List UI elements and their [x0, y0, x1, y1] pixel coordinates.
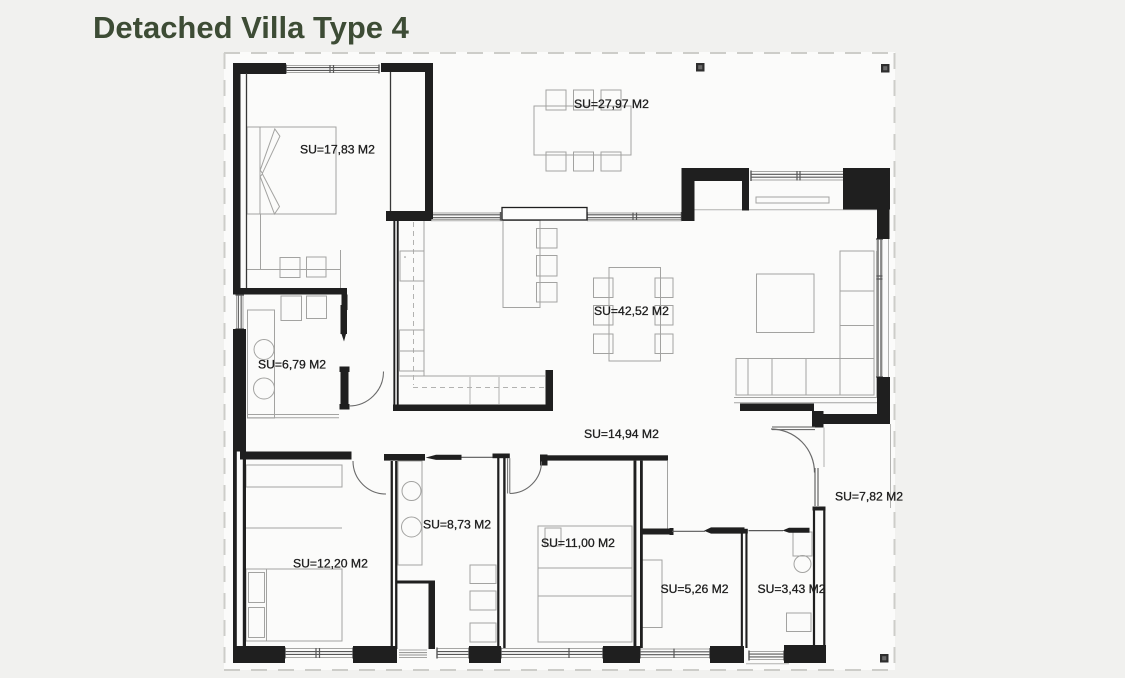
svg-text:SU=12,20 M2: SU=12,20 M2	[293, 557, 368, 571]
svg-text:SU=5,26 M2: SU=5,26 M2	[661, 582, 729, 596]
svg-text:SU=3,43 M2: SU=3,43 M2	[758, 582, 826, 596]
svg-text:SU=6,79 M2: SU=6,79 M2	[258, 358, 326, 372]
svg-text:SU=7,82 M2: SU=7,82 M2	[835, 490, 903, 504]
svg-text:SU=27,97 M2: SU=27,97 M2	[574, 97, 649, 111]
svg-text:SU=17,83 M2: SU=17,83 M2	[300, 143, 375, 157]
svg-text:SU=8,73 M2: SU=8,73 M2	[423, 518, 491, 532]
svg-text:Detached Villa Type 4: Detached Villa Type 4	[93, 10, 410, 45]
svg-text:SU=11,00 M2: SU=11,00 M2	[541, 536, 615, 550]
svg-text:SU=42,52 M2: SU=42,52 M2	[594, 304, 669, 318]
svg-text:SU=14,94 M2: SU=14,94 M2	[584, 427, 659, 441]
